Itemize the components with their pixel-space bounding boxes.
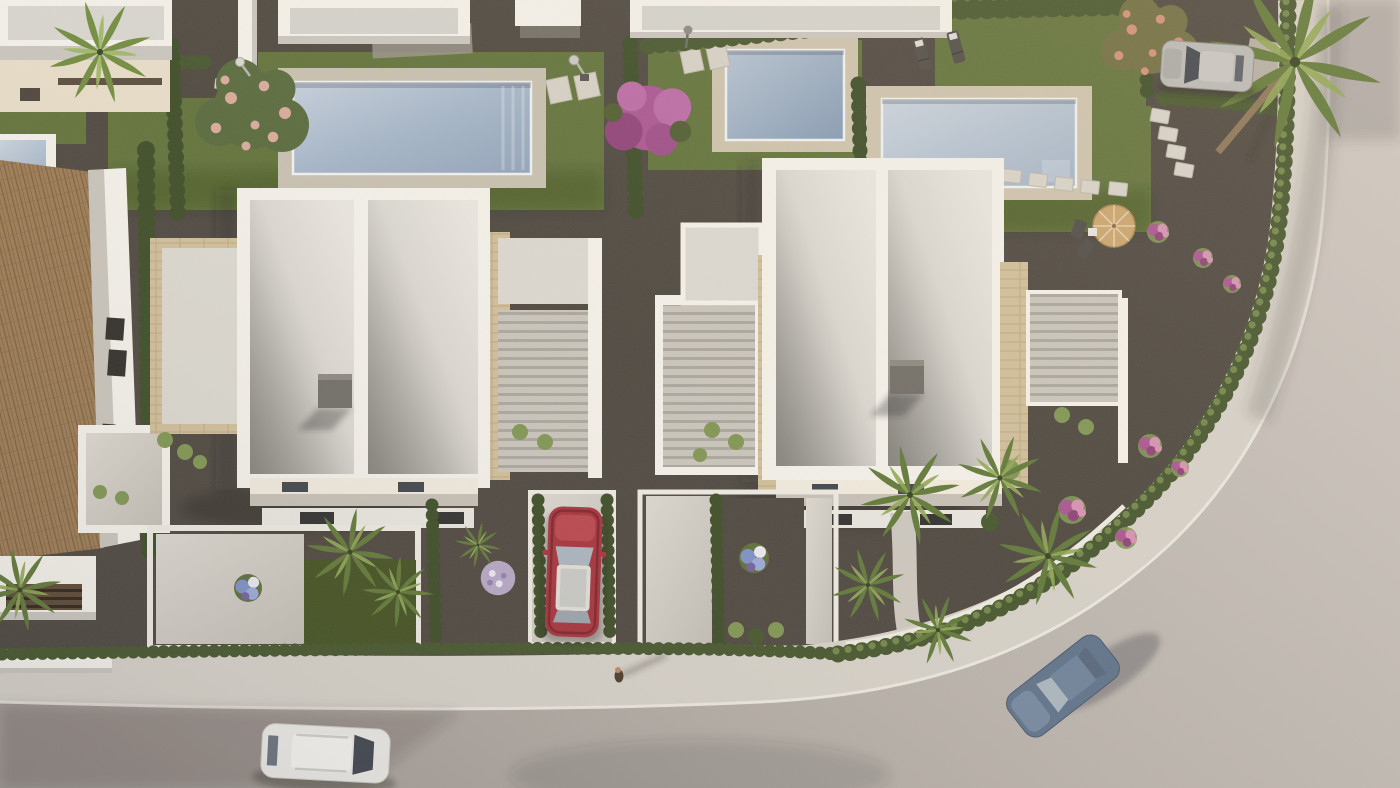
render-canvas [0,0,1400,788]
sunlight-tint [0,0,1400,788]
aerial-development-render [0,0,1400,788]
